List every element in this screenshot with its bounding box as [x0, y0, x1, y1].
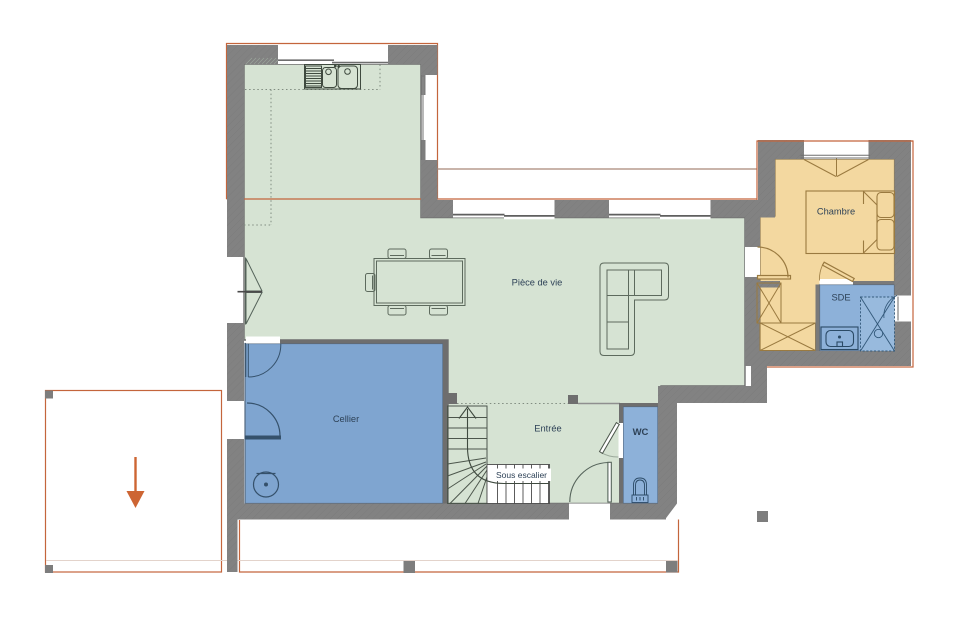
svg-text:Entrée: Entrée — [534, 423, 561, 433]
svg-text:Pièce de vie: Pièce de vie — [512, 278, 563, 288]
svg-text:Chambre: Chambre — [817, 206, 855, 216]
svg-text:Sous escalier: Sous escalier — [496, 470, 547, 480]
svg-text:SDE: SDE — [831, 292, 850, 302]
svg-text:WC: WC — [633, 427, 649, 438]
svg-text:Cellier: Cellier — [333, 414, 359, 424]
